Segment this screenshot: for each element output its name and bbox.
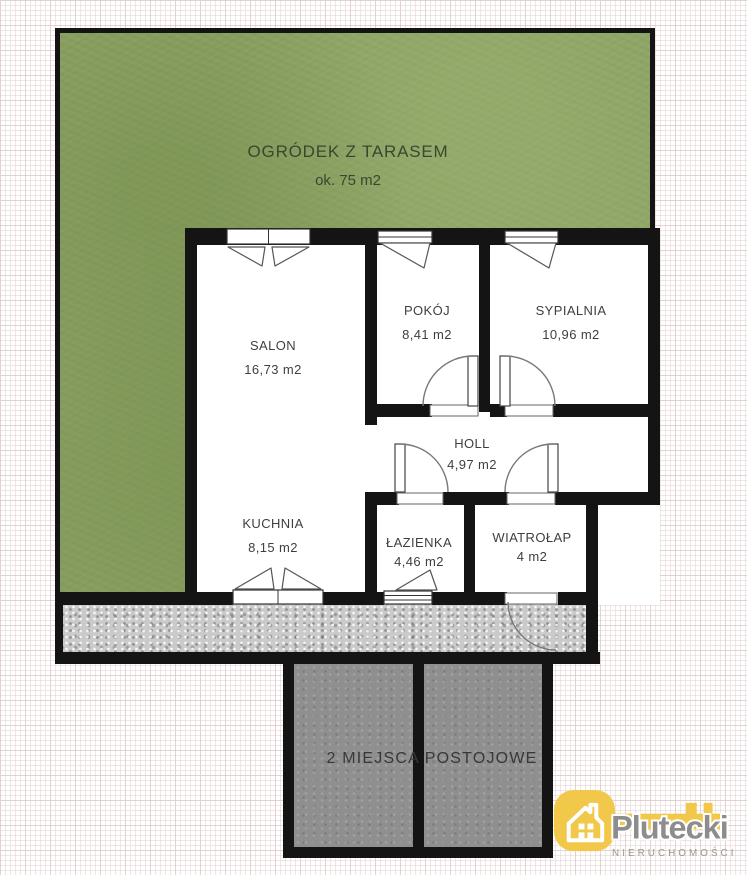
room-name: WIATROŁAP <box>492 530 571 545</box>
wall-segment <box>185 228 660 245</box>
room-label-salon: SALON 16,73 m2 <box>244 338 301 377</box>
wall-segment <box>283 652 294 858</box>
wall-segment <box>443 492 509 505</box>
room-label-pokoj: POKÓJ 8,41 m2 <box>402 303 452 342</box>
wall-segment <box>555 492 660 505</box>
wall-segment <box>586 492 598 664</box>
room-name: SYPIALNIA <box>536 303 607 318</box>
wall-segment <box>479 240 490 412</box>
room-area: 4,46 m2 <box>386 554 452 569</box>
logo-subtitle-text: NIERUCHOMOŚCI <box>612 847 736 859</box>
room-label-kuchnia: KUCHNIA 8,15 m2 <box>242 516 303 555</box>
room-name: KUCHNIA <box>242 516 303 531</box>
wall-segment <box>55 592 233 605</box>
room-label-sypialnia: SYPIALNIA 10,96 m2 <box>536 303 607 342</box>
room-area: 4 m2 <box>492 549 571 564</box>
room-name: SALON <box>244 338 301 353</box>
room-area: 8,41 m2 <box>402 327 452 342</box>
wall-segment <box>365 492 377 605</box>
room-area: 8,15 m2 <box>242 540 303 555</box>
room-label-wiatrolap: WIATROŁAP 4 m2 <box>492 530 571 564</box>
room-label-lazienka: ŁAZIENKA 4,46 m2 <box>386 535 452 569</box>
wall-segment <box>283 847 553 858</box>
room-label-holl: HOLL 4,97 m2 <box>447 436 497 472</box>
walkway-pavement <box>63 604 586 652</box>
wall-segment <box>464 505 475 605</box>
room-area: 4,97 m2 <box>447 457 497 472</box>
wall-segment <box>185 228 197 605</box>
room-area: 10,96 m2 <box>536 327 607 342</box>
garden-label: OGRÓDEK Z TARASEM <box>248 142 449 162</box>
room-name: HOLL <box>447 436 497 451</box>
wall-segment <box>55 592 63 664</box>
wall-segment <box>365 240 377 425</box>
room-name: POKÓJ <box>402 303 452 318</box>
logo-brand-text: Plutecki <box>611 809 728 845</box>
room-area: 16,73 m2 <box>244 362 301 377</box>
room-name: ŁAZIENKA <box>386 535 452 550</box>
wall-segment <box>648 228 660 505</box>
parking-label: 2 MIEJSCA POSTOJOWE <box>327 750 538 768</box>
wall-segment <box>490 404 507 417</box>
wall-segment <box>55 652 600 664</box>
wall-segment <box>553 404 660 417</box>
wall-segment <box>365 404 432 417</box>
plutecki-logo: Plutecki NIERUCHOMOŚCI <box>550 778 747 872</box>
garden-area-label: ok. 75 m2 <box>315 172 381 189</box>
wall-segment <box>558 592 598 605</box>
floor-plan: OGRÓDEK Z TARASEM ok. 75 m2 SALON 16,73 … <box>0 0 747 875</box>
